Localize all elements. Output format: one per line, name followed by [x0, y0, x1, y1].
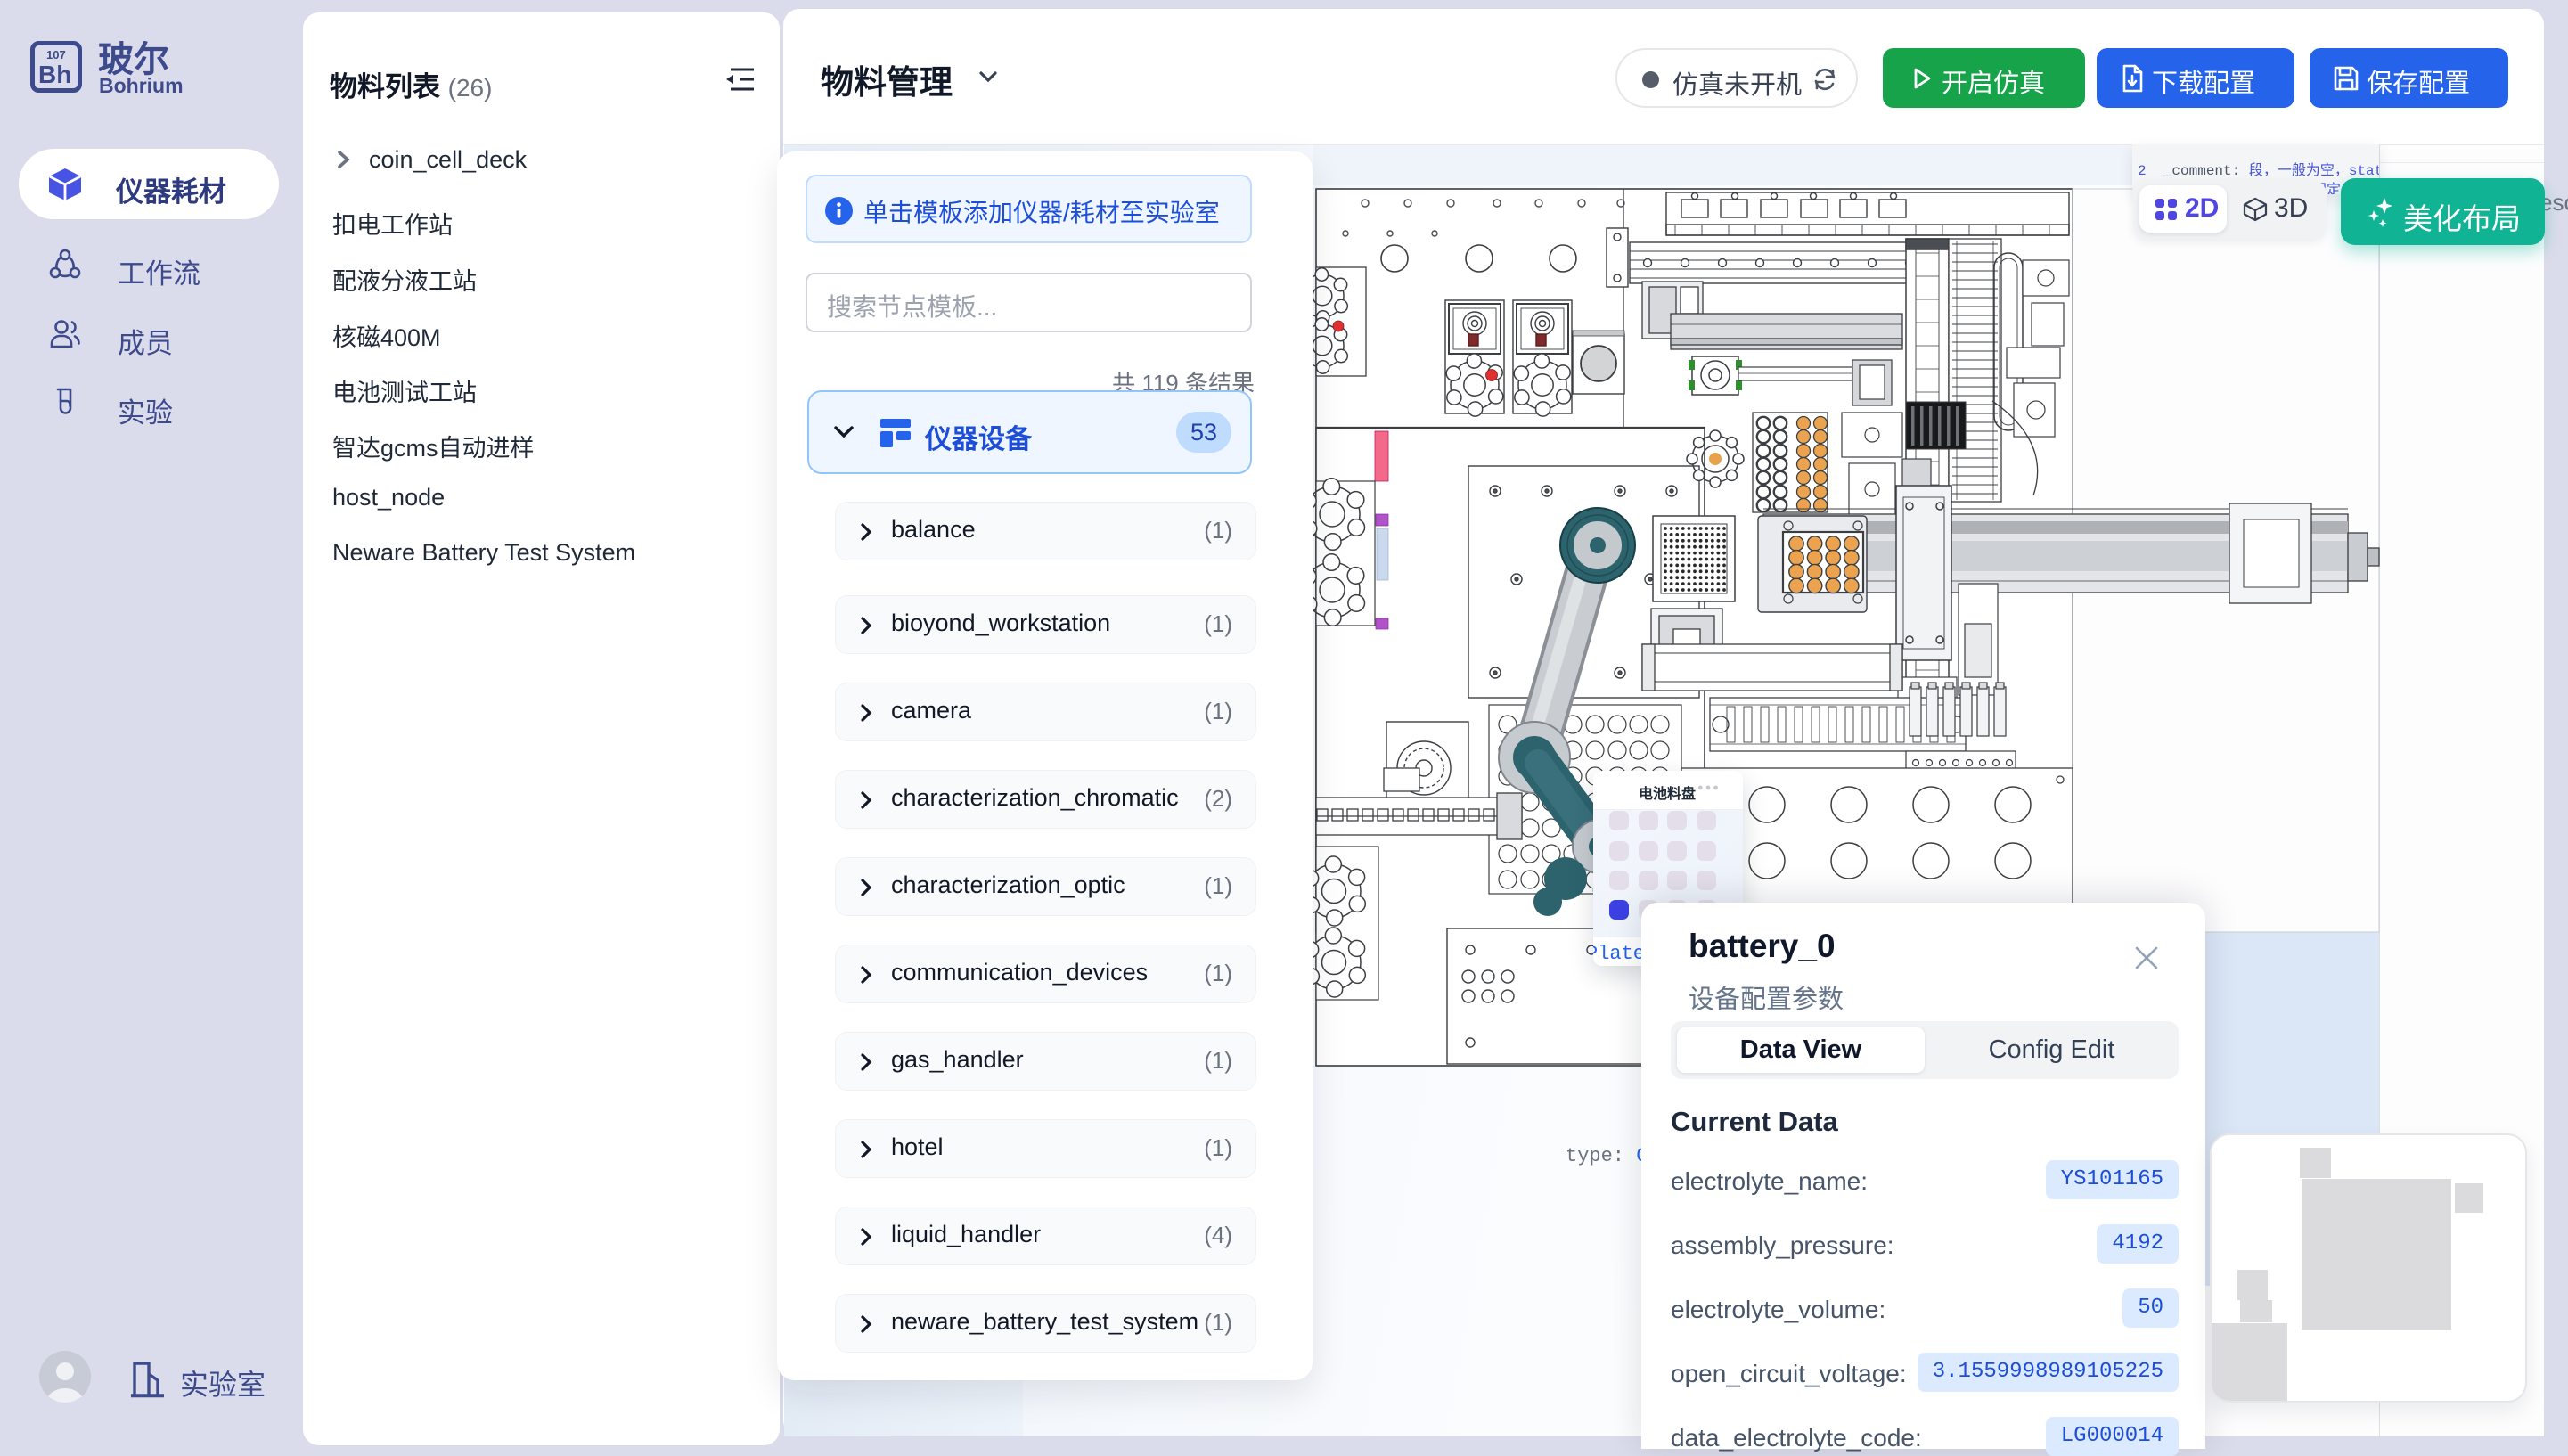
svg-text:107: 107: [46, 48, 66, 61]
svg-text:Bohrium: Bohrium: [99, 74, 184, 94]
svg-text:Bh: Bh: [38, 61, 71, 88]
